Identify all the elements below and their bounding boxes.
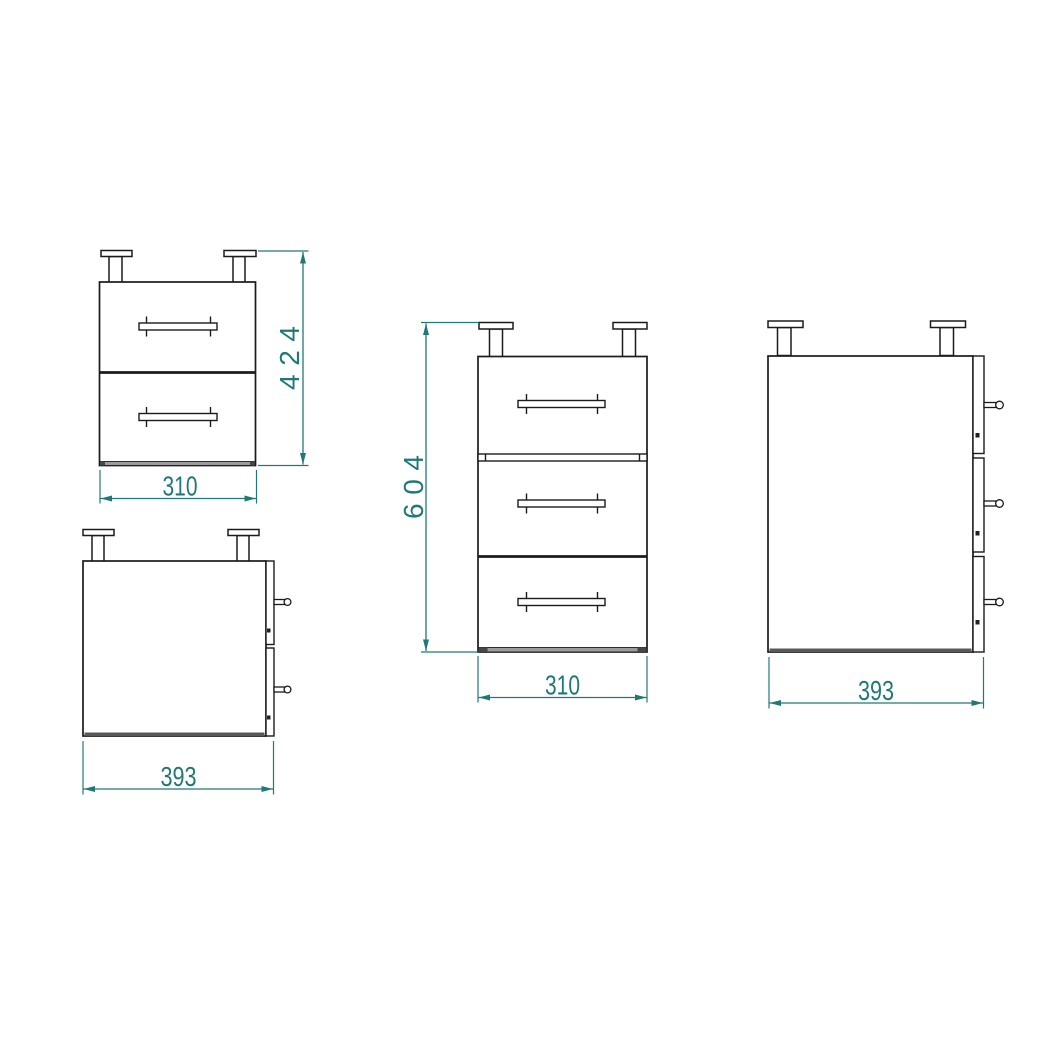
bottom-panel [770, 649, 972, 653]
drawer-front-edge [973, 356, 984, 652]
front-view-two-drawer: 424 310 [100, 251, 309, 504]
mounting-bracket-right [613, 323, 647, 358]
mounting-bracket-left [479, 323, 513, 358]
dimension-label-width: 310 [545, 670, 580, 701]
bottom-panel [85, 733, 265, 737]
mounting-bracket-right [228, 530, 259, 562]
dimension-width-310: 310 [100, 470, 257, 504]
handle-pin-middle [984, 500, 1003, 508]
mounting-bracket-left [101, 251, 132, 283]
drawer-front-edge [266, 561, 274, 736]
mounting-bracket-left [83, 530, 114, 562]
handle-pin-top [274, 599, 291, 606]
dimension-label-width: 310 [163, 471, 198, 502]
dimension-label-depth: 393 [858, 675, 894, 706]
dimension-height-424: 424 [258, 251, 309, 466]
dimension-depth-393: 393 [769, 657, 984, 709]
mounting-bracket-right [931, 321, 966, 356]
handle-pin-bottom [984, 598, 1003, 606]
screw-dot [976, 531, 980, 536]
side-view-three-drawer: 393 [768, 321, 1003, 709]
cad-drawing-svg: 424 310 [0, 0, 1050, 1050]
handle-pin-bottom [274, 686, 291, 693]
handle-pin-top [984, 401, 1003, 409]
dimension-label-height: 424 [274, 326, 305, 390]
dimension-depth-393: 393 [83, 741, 274, 795]
screw-dot [976, 433, 980, 438]
mounting-bracket-left [768, 321, 803, 356]
dimension-width-310: 310 [478, 656, 647, 703]
cabinet-body [768, 356, 973, 652]
dimension-height-604: 604 [398, 323, 479, 653]
screw-dot [267, 629, 271, 633]
dimension-label-height: 604 [398, 455, 429, 519]
cabinet-body [83, 561, 266, 736]
bottom-panel [479, 648, 647, 653]
bottom-panel [100, 462, 255, 466]
front-view-three-drawer: 604 310 [398, 323, 647, 703]
screw-dot [267, 716, 271, 720]
technical-drawing-canvas: 424 310 [0, 0, 1050, 1050]
side-view-two-drawer: 393 [83, 530, 291, 795]
drawer-divider-upper [478, 454, 647, 461]
screw-dot [976, 620, 980, 625]
mounting-bracket-right [224, 251, 256, 283]
dimension-label-depth: 393 [161, 761, 197, 792]
